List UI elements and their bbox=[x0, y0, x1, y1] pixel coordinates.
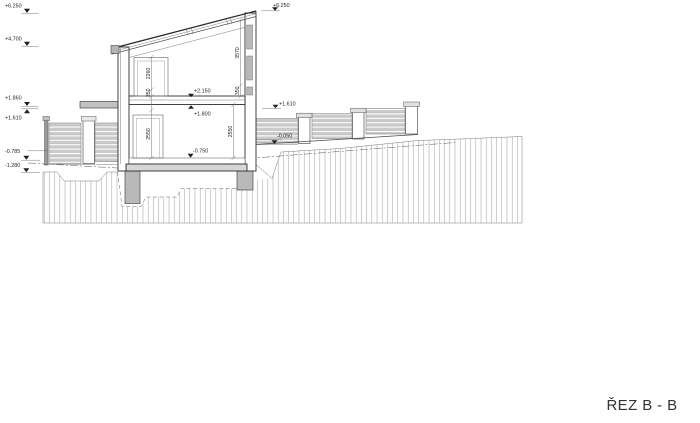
marker-label: +2.150 bbox=[194, 89, 211, 95]
marker-label: -1.280 bbox=[5, 163, 20, 169]
marker-arrow-down-icon bbox=[188, 154, 194, 158]
dim-lower-room-height-left: 2550 bbox=[146, 128, 152, 140]
marker-label: +1.610 bbox=[279, 102, 296, 108]
foundation-left bbox=[125, 171, 140, 204]
dim-upper-room-height: 2260 bbox=[146, 68, 152, 80]
marker-arrow-down-icon bbox=[273, 105, 279, 108]
marker-label: +4.700 bbox=[5, 37, 22, 43]
elevation-marker-1610-left: +1.610 bbox=[5, 109, 39, 122]
marker-arrow-down-icon bbox=[24, 42, 30, 46]
dim-upper-slab-right: 350 bbox=[235, 86, 241, 95]
elevation-markers-left: +6.250 +4.700 +1.860 +1.610 -0.785 -1.28… bbox=[5, 4, 47, 173]
fence-post-right-3-cap bbox=[404, 102, 420, 106]
fence-slats-right-c bbox=[366, 109, 405, 135]
dim-upper-slab-left: 350 bbox=[146, 88, 152, 97]
left-terrace-fence bbox=[43, 102, 129, 166]
window-right-sill bbox=[247, 87, 253, 95]
drawing-title: ŘEZ B - B bbox=[606, 397, 677, 414]
elevation-marker-1280-left: -1.280 bbox=[5, 163, 40, 173]
fence-post-right-1-cap bbox=[297, 113, 313, 117]
elevation-marker-4700-left: +4.700 bbox=[5, 37, 39, 47]
marker-label: +1.800 bbox=[194, 112, 211, 118]
dim-upper-room-height-right: 3570 bbox=[235, 47, 241, 59]
roof-top-line bbox=[112, 11, 256, 49]
elevation-marker-6250-left: +6.250 bbox=[5, 4, 39, 14]
marker-arrow-down-icon bbox=[23, 156, 29, 160]
fence-post-left-mid-cap bbox=[82, 117, 97, 122]
marker-arrow-up-icon bbox=[24, 109, 30, 113]
foundation-right bbox=[237, 171, 253, 190]
marker-arrow-down-icon bbox=[23, 168, 29, 172]
elevation-marker-1610-right: +1.610 bbox=[262, 102, 296, 109]
elevation-marker-6250-right: +6.250 bbox=[262, 3, 290, 11]
fence-post-right-2 bbox=[353, 110, 365, 139]
ground-floor-finish bbox=[129, 158, 245, 164]
fence-post-left-end-cap bbox=[43, 117, 50, 121]
eave-gutter bbox=[111, 46, 119, 54]
section-drawing: 2260 350 3570 350 2550 2550 +6.250 +4.70… bbox=[0, 0, 700, 423]
fence-post-right-3 bbox=[406, 104, 418, 134]
ground-floor-slab bbox=[126, 164, 247, 171]
marker-label: +1.610 bbox=[5, 116, 22, 122]
elevation-marker-1860-left: +1.860 bbox=[5, 96, 39, 107]
fence-slats-right-b bbox=[312, 114, 352, 139]
marker-arrow-down-icon bbox=[24, 102, 30, 106]
marker-label: +6.250 bbox=[5, 4, 22, 10]
marker-label: -0.785 bbox=[5, 149, 20, 155]
marker-label: -0.750 bbox=[193, 149, 208, 155]
marker-label: +1.860 bbox=[5, 96, 22, 102]
roof-inner-line bbox=[113, 14, 256, 52]
level-marker-0750: -0.750 bbox=[188, 149, 209, 158]
fence-slats-left-a bbox=[49, 123, 81, 164]
window-right-top bbox=[247, 25, 253, 49]
marker-arrow-up-icon bbox=[188, 105, 194, 109]
fence-post-left-mid bbox=[83, 120, 95, 164]
fence-post-left-end bbox=[45, 118, 49, 165]
window-right-mid bbox=[247, 56, 253, 80]
wall-left bbox=[118, 47, 129, 171]
fence-post-right-2-cap bbox=[351, 108, 367, 112]
fence-post-right-1 bbox=[299, 115, 311, 144]
elevation-marker-0785-left: -0.785 bbox=[5, 149, 47, 160]
marker-arrow-down-icon bbox=[24, 9, 30, 13]
marker-label: -0.050 bbox=[277, 134, 292, 140]
dim-lower-room-height-right: 2550 bbox=[228, 126, 234, 138]
drawing-sheet: 2260 350 3570 350 2550 2550 +6.250 +4.70… bbox=[0, 0, 700, 423]
level-marker-1800: +1.800 bbox=[188, 105, 211, 117]
original-grade-dashdot-left bbox=[28, 163, 126, 169]
